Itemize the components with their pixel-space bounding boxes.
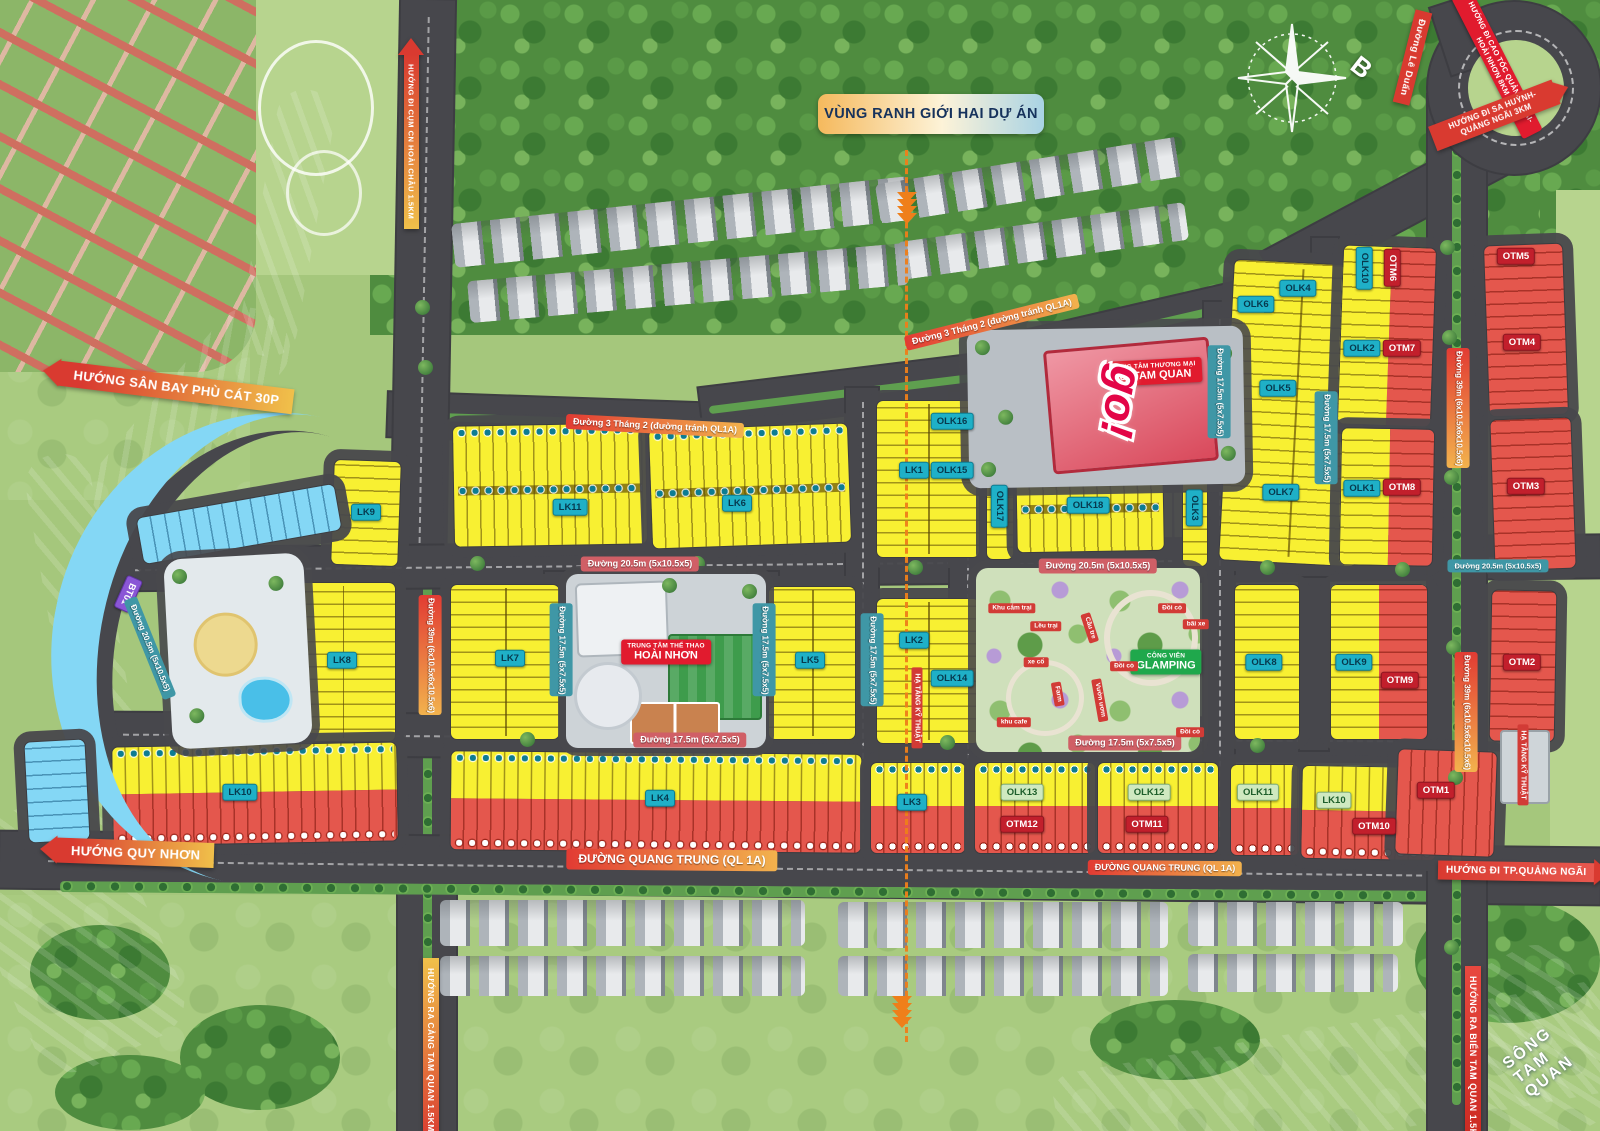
block-label-olk11: OLK11: [1237, 784, 1279, 801]
tree: [172, 569, 188, 585]
banner-industrial-label: HƯỚNG ĐI CỤM CN HOÀI CHÂU 1.5KM: [404, 54, 419, 229]
block-label-olk7: OLK7: [1262, 484, 1299, 501]
block-label-otm5: OTM5: [1497, 248, 1535, 265]
sports-center-name: HOÀI NHƠN: [627, 650, 705, 662]
block-olk1-otm8[interactable]: [1339, 427, 1435, 567]
infrastructure-label: HẠ TẦNG KỸ THUẬT: [1518, 724, 1529, 805]
map-title: VÙNG RANH GIỚI HAI DỰ ÁN: [818, 94, 1044, 134]
road-label-17-5: Đường 17.5m (5x7.5x5): [1315, 391, 1338, 484]
road-label-17-5: Đường 17.5m (5x7.5x5): [550, 603, 573, 696]
banner-port-label: HƯỚNG RA CẢNG TAM QUAN 1.5KM: [423, 958, 439, 1131]
park-label-parking: bãi xe: [1183, 619, 1209, 629]
road-label-20-5: Đường 20.5m (5x10.5x5): [1447, 559, 1548, 572]
pool: [237, 675, 293, 724]
block-label-olk2: OLK2: [1343, 340, 1380, 357]
tree: [662, 578, 677, 593]
villa-row: [1188, 954, 1398, 992]
olk1-lots: [1340, 428, 1390, 565]
villa-row: [838, 902, 1168, 948]
olk11-red-lots: [1231, 808, 1299, 855]
tree: [1444, 470, 1459, 485]
block-label-olk13: OLK13: [1001, 784, 1044, 801]
block-lk6[interactable]: [648, 423, 852, 550]
tree: [415, 300, 430, 315]
block-label-olk10: OLK10: [1356, 247, 1373, 290]
project-boundary-line: [905, 150, 908, 1042]
tree: [418, 360, 433, 375]
park-label-cafe: khu cafe: [997, 717, 1031, 727]
road-39m-right-median: [1452, 120, 1461, 1105]
block-label-lk8: LK8: [327, 652, 357, 669]
glamping-name: GLAMPING: [1136, 660, 1195, 672]
block-label-olk8: OLK8: [1245, 654, 1282, 671]
banner-tp-quang-ngai-label: HƯỚNG ĐI TP.QUẢNG NGÃI: [1438, 860, 1595, 882]
glamping-type: CÔNG VIÊN: [1136, 653, 1195, 660]
arrow-right-icon: [1594, 859, 1600, 885]
block-label-lk5: LK5: [795, 652, 825, 669]
block-label-olk4: OLK4: [1279, 280, 1316, 297]
park-label-grass-hill: Đồi cỏ: [1158, 603, 1186, 613]
arrow-up-icon: [398, 38, 424, 55]
block-label-lk1: LK1: [899, 462, 929, 479]
sports-center-type: TRUNG TÂM THỂ THAO: [627, 643, 705, 650]
tree: [1440, 240, 1455, 255]
sports-center-label: TRUNG TÂM THỂ THAO HOÀI NHƠN: [621, 640, 711, 665]
block-olk12-otm11[interactable]: [1097, 762, 1219, 854]
block-label-otm10: OTM10: [1352, 818, 1396, 835]
block-olk13-otm12[interactable]: [974, 762, 1096, 854]
road-label-39: Đường 39m (6x10.5x6x10.5x6): [1447, 348, 1470, 468]
tree: [908, 560, 923, 575]
otm9-lots: [1379, 585, 1427, 739]
road-label-20-5: Đường 20.5m (5x10.5x5): [1039, 559, 1157, 574]
park-label-tents: Lều trại: [1030, 621, 1061, 631]
block-label-lk10r: LK10: [1316, 792, 1351, 809]
block-cyan-south[interactable]: [23, 738, 90, 843]
block-lk11[interactable]: [452, 422, 648, 547]
block-label-lk2: LK2: [899, 632, 929, 649]
block-label-otm6: OTM6: [1384, 249, 1401, 287]
street-vertical: [1300, 578, 1328, 750]
block-label-olk15: OLK15: [931, 462, 974, 479]
lk3-red-lots: [871, 806, 965, 853]
road-label-39: Đường 39m (6x10.5x6x10.5x6): [1455, 652, 1478, 772]
block-label-lk9: LK9: [351, 504, 381, 521]
block-label-olk5: OLK5: [1259, 380, 1296, 397]
otm8-lots: [1388, 429, 1435, 566]
block-label-olk9: OLK9: [1335, 654, 1372, 671]
block-label-olk16: OLK16: [931, 413, 974, 430]
water-park[interactable]: [163, 552, 313, 749]
tree: [1395, 562, 1410, 577]
block-label-olk18: OLK18: [1067, 497, 1110, 514]
block-label-otm11: OTM11: [1125, 816, 1168, 833]
road-label-17-5: Đường 17.5m (5x7.5x5): [1068, 736, 1181, 751]
tree: [940, 735, 955, 750]
tree: [520, 732, 535, 747]
banner-tp-quang-ngai: HƯỚNG ĐI TP.QUẢNG NGÃI: [1438, 856, 1600, 885]
block-label-olk17: OLK17: [991, 485, 1008, 528]
boundary-marker-top: [897, 196, 917, 224]
block-label-lk10: LK10: [222, 784, 257, 801]
boundary-marker-bottom: [892, 1000, 912, 1028]
glamping-label: CÔNG VIÊN GLAMPING: [1130, 650, 1201, 675]
villa-row: [838, 956, 1168, 996]
tree: [742, 584, 757, 599]
road-label-20-5: Đường 20.5m (5x10.5x5): [581, 557, 699, 572]
village-top-left: [0, 0, 256, 372]
tree: [268, 576, 284, 592]
block-otm1[interactable]: [1394, 748, 1498, 857]
block-olk11[interactable]: [1230, 764, 1300, 856]
park-label-grass-hill: Đồi cỏ: [1176, 727, 1204, 737]
master-plan-map: BT01: [0, 0, 1600, 1131]
block-label-otm3: OTM3: [1507, 478, 1545, 495]
infrastructure-label: HẠ TẦNG KỸ THUẬT: [912, 667, 923, 748]
banner-port: HƯỚNG RA CẢNG TAM QUAN 1.5KM: [418, 958, 444, 1131]
block-label-lk7: LK7: [495, 650, 525, 667]
road-label-17-5: Đường 17.5m (5x7.5x5): [633, 733, 746, 748]
road-label-17-5: Đường 17.5m (5x7.5x5): [753, 603, 776, 696]
block-otm5-otm4[interactable]: [1483, 243, 1569, 418]
compass-rose-icon: [1232, 18, 1352, 138]
road-label-quang-trung: ĐƯỜNG QUANG TRUNG (QL 1A): [566, 848, 777, 871]
tree: [1444, 940, 1459, 955]
banner-industrial: HƯỚNG ĐI CỤM CN HOÀI CHÂU 1.5KM: [398, 38, 424, 229]
villa-row: [440, 900, 805, 946]
arrow-left-icon: [40, 835, 58, 864]
road-label-quang-trung: ĐƯỜNG QUANG TRUNG (QL 1A): [1088, 860, 1243, 876]
block-label-otm4: OTM4: [1503, 334, 1541, 351]
block-label-otm1: OTM1: [1417, 782, 1455, 799]
block-label-otm8: OTM8: [1383, 479, 1421, 496]
road-label-17-5: Đường 17.5m (5x7.5x5): [861, 613, 884, 706]
block-label-otm7: OTM7: [1383, 340, 1421, 357]
tree: [1260, 560, 1275, 575]
circular-plaza: [574, 662, 642, 730]
banner-sea-label: HƯỚNG RA BIỂN TAM QUAN 1.5KM: [1465, 966, 1481, 1131]
tree: [1221, 446, 1236, 461]
block-label-olk1: OLK1: [1343, 480, 1380, 497]
park-label-old-cars: xe cổ: [1024, 657, 1049, 667]
block-label-otm9: OTM9: [1381, 672, 1419, 689]
villa-row: [440, 956, 805, 996]
lk4-red-lots: [451, 798, 861, 853]
park-label-camping: Khu cắm trại: [988, 603, 1035, 613]
block-label-olk12: OLK12: [1128, 784, 1171, 801]
banner-sea: HƯỚNG RA BIỂN TAM QUAN 1.5KM: [1460, 966, 1486, 1131]
villa-row: [1188, 902, 1403, 946]
road-label-39: Đường 39m (6x10.5x6x10.5x6): [419, 595, 442, 715]
block-label-lk3: LK3: [897, 794, 927, 811]
block-label-lk4: LK4: [645, 790, 675, 807]
sand-playground: [192, 611, 259, 678]
tree: [189, 708, 205, 724]
block-label-otm12: OTM12: [1000, 816, 1044, 833]
block-label-lk11: LK11: [553, 499, 588, 516]
block-label-otm2: OTM2: [1503, 654, 1541, 671]
tree: [998, 410, 1013, 425]
banner-quy-nhon-label: HƯỚNG QUY NHƠN: [57, 837, 215, 867]
park-label-grass-hill: Đồi cỏ: [1110, 661, 1138, 671]
block-label-olk3: OLK3: [1186, 489, 1203, 526]
block-label-olk6: OLK6: [1237, 296, 1274, 313]
block-label-lk6: LK6: [722, 495, 752, 512]
tree: [1250, 738, 1265, 753]
block-label-olk14: OLK14: [931, 670, 974, 687]
tree: [981, 462, 996, 477]
tree: [1442, 330, 1457, 345]
tree: [975, 340, 990, 355]
road-label-17-5: Đường 17.5m (5x7.5x5): [1208, 345, 1231, 438]
